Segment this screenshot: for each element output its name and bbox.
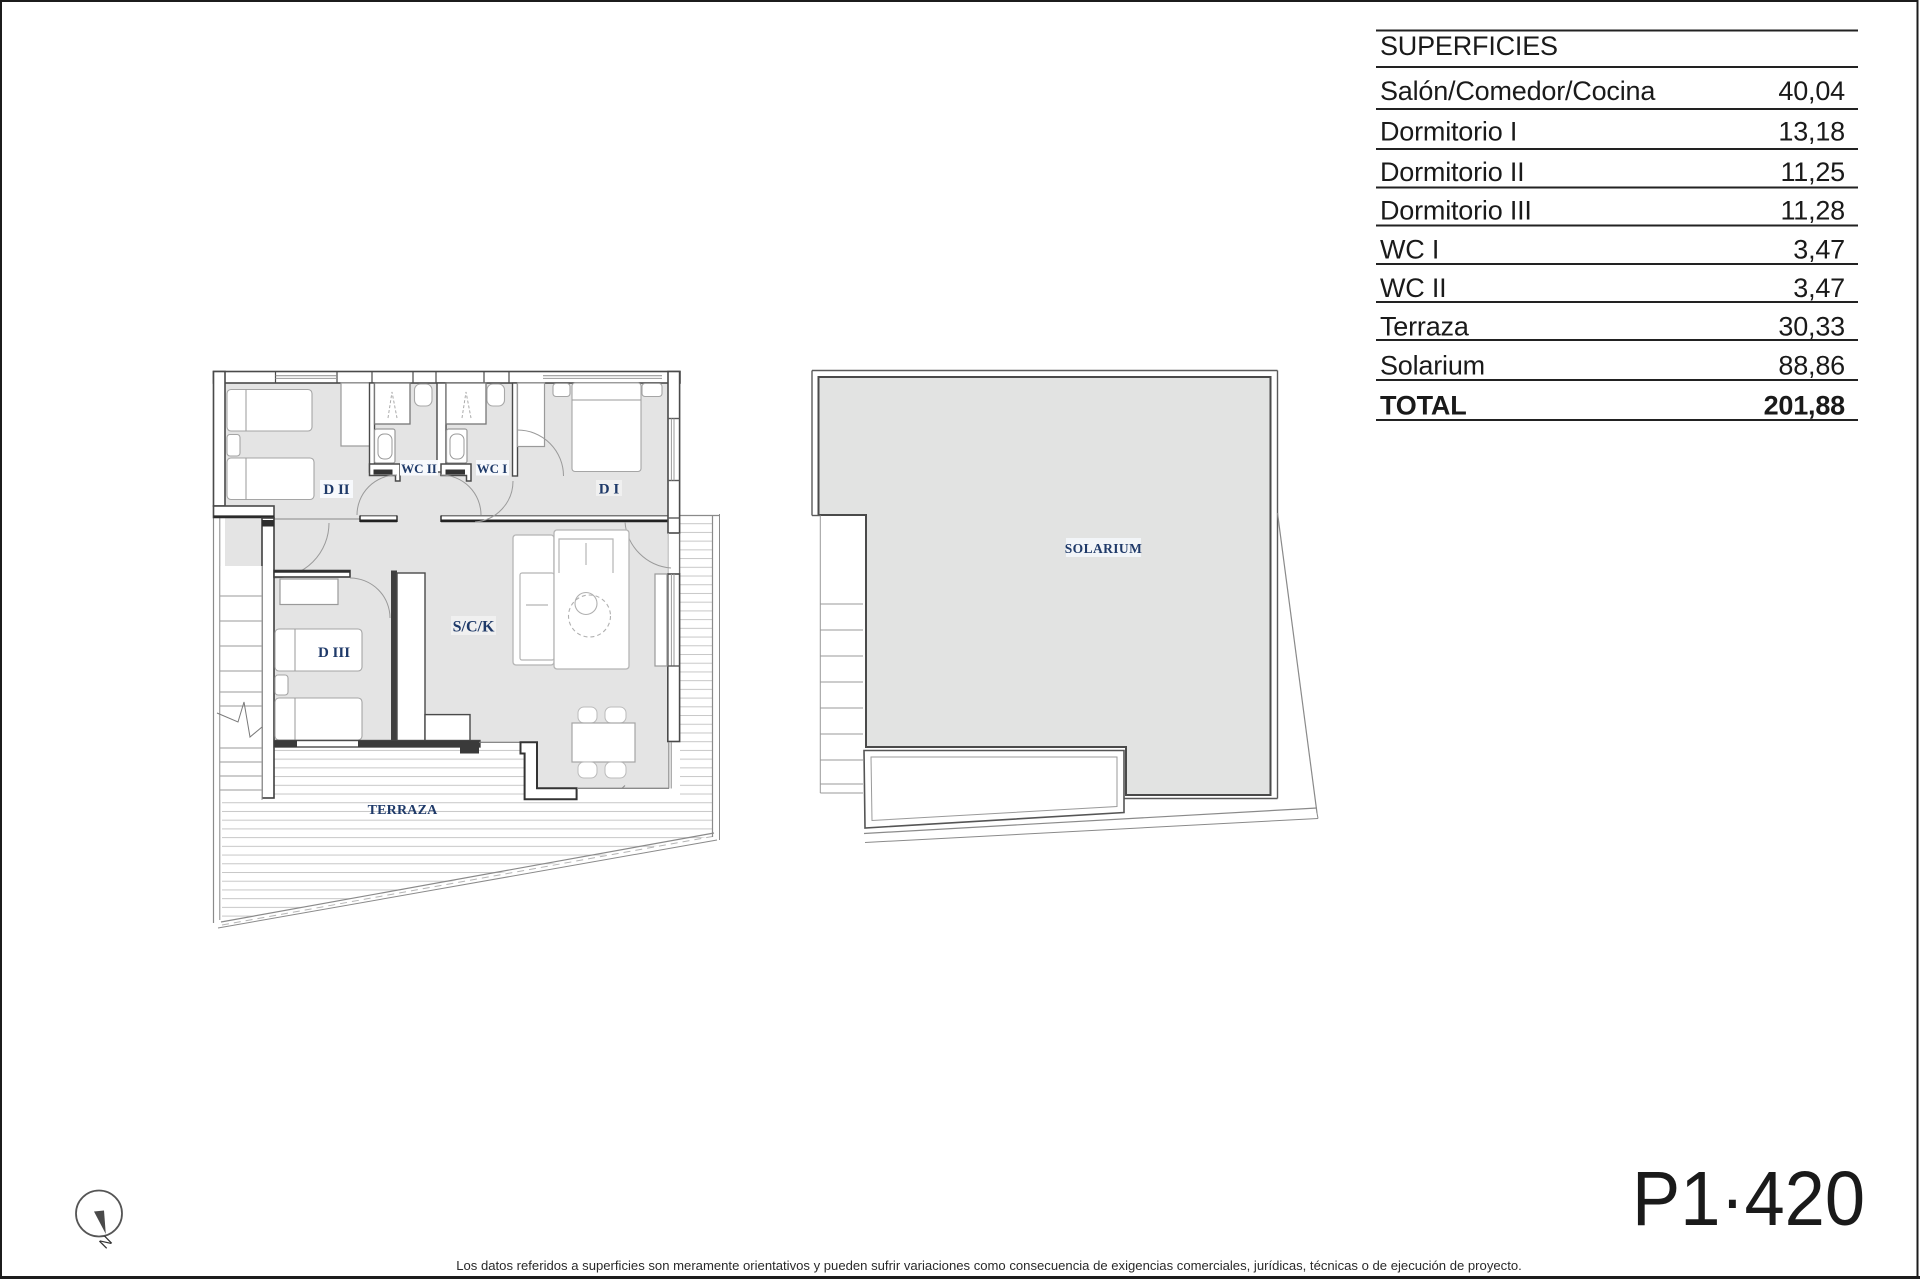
svg-text:88,86: 88,86 <box>1778 351 1845 381</box>
svg-text:201,88: 201,88 <box>1764 391 1846 421</box>
svg-text:40,04: 40,04 <box>1778 76 1845 106</box>
svg-text:11,25: 11,25 <box>1780 157 1845 187</box>
svg-text:WC I: WC I <box>1380 235 1439 265</box>
svg-text:Los datos referidos a superfic: Los datos referidos a superficies son me… <box>456 1258 1522 1273</box>
svg-text:3,47: 3,47 <box>1793 235 1845 265</box>
svg-text:Terraza: Terraza <box>1380 312 1470 342</box>
svg-text:WC II: WC II <box>1380 273 1447 303</box>
svg-text:D II: D II <box>323 482 349 498</box>
svg-text:SOLARIUM: SOLARIUM <box>1065 541 1142 556</box>
svg-text:P1·420: P1·420 <box>1632 1156 1865 1242</box>
svg-text:3,47: 3,47 <box>1793 273 1845 303</box>
svg-text:11,28: 11,28 <box>1780 196 1845 226</box>
svg-text:Solarium: Solarium <box>1380 351 1485 381</box>
svg-text:WC I: WC I <box>477 461 508 476</box>
svg-text:TOTAL: TOTAL <box>1380 391 1467 421</box>
svg-text:13,18: 13,18 <box>1778 117 1845 147</box>
svg-text:D I: D I <box>599 482 620 498</box>
svg-text:Dormitorio III: Dormitorio III <box>1380 196 1532 226</box>
svg-text:SUPERFICIES: SUPERFICIES <box>1380 31 1558 61</box>
svg-text:Dormitorio II: Dormitorio II <box>1380 157 1524 187</box>
svg-text:WC II: WC II <box>401 461 437 476</box>
svg-text:TERRAZA: TERRAZA <box>368 803 439 818</box>
svg-text:D III: D III <box>318 645 350 661</box>
svg-text:S/C/K: S/C/K <box>453 619 495 636</box>
svg-text:30,33: 30,33 <box>1778 312 1845 342</box>
svg-text:Dormitorio I: Dormitorio I <box>1380 117 1517 147</box>
svg-text:Salón/Comedor/Cocina: Salón/Comedor/Cocina <box>1380 76 1656 106</box>
